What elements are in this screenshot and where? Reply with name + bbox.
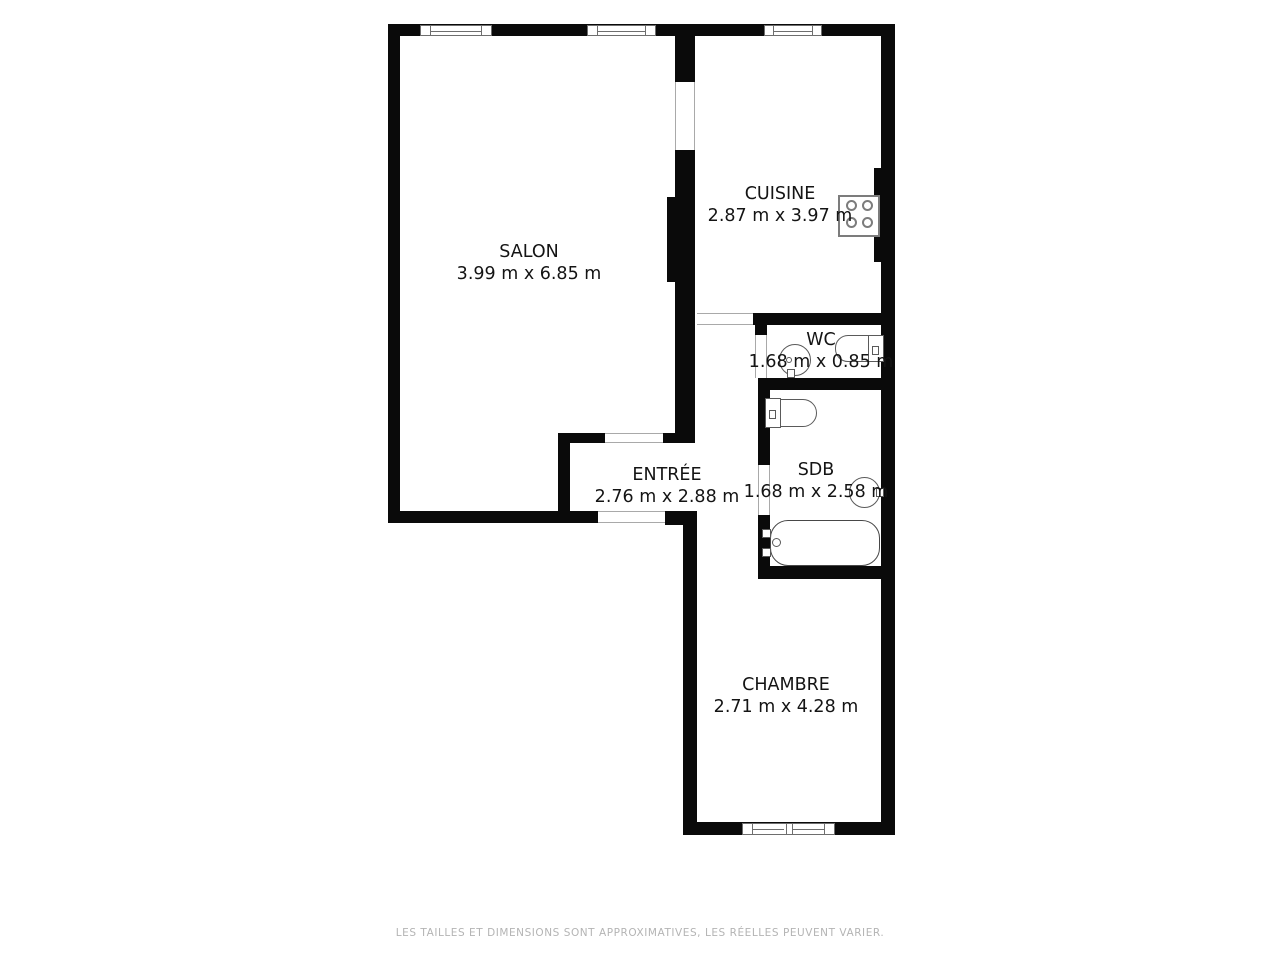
window-salon-left-icon — [420, 25, 492, 36]
room-dimensions: 2.76 m x 2.88 m — [595, 486, 740, 508]
room-label-chambre: CHAMBRE 2.71 m x 4.28 m — [714, 674, 859, 718]
disclaimer-text: LES TAILLES ET DIMENSIONS SONT APPROXIMA… — [396, 927, 885, 939]
room-dimensions: 3.99 m x 6.85 m — [457, 263, 602, 285]
wall-salon-notch-nib — [558, 433, 605, 443]
opening-salon-entree — [605, 433, 663, 443]
wall-left — [388, 24, 400, 523]
room-label-salon: SALON 3.99 m x 6.85 m — [457, 241, 602, 285]
room-dimensions: 1.68 m x 2.58 m — [744, 481, 889, 503]
wall-divider-bump — [667, 197, 675, 282]
sdb-toilet-button-icon — [769, 410, 776, 419]
wall-right — [881, 24, 895, 835]
room-dimensions: 2.71 m x 4.28 m — [714, 696, 859, 718]
window-cuisine-icon — [764, 25, 822, 36]
opening-cuisine-corridor — [697, 313, 753, 325]
window-chambre-icon — [742, 823, 835, 835]
room-label-sdb: SDB 1.68 m x 2.58 m — [744, 459, 889, 503]
room-dimensions: 1.68 m x 0.85 m — [749, 351, 894, 373]
room-name: ENTRÉE — [595, 464, 740, 486]
opening-front-door — [598, 511, 665, 523]
floorplan-canvas: SALON 3.99 m x 6.85 m CUISINE 2.87 m x 3… — [0, 0, 1280, 960]
room-label-cuisine: CUISINE 2.87 m x 3.97 m — [708, 183, 853, 227]
room-name: CUISINE — [708, 183, 853, 205]
wall-chambre-left — [683, 525, 697, 835]
wall-entree-nib — [663, 433, 677, 443]
wall-front-door-corner — [665, 511, 697, 525]
sdb-toilet-bowl-icon — [780, 399, 817, 427]
wall-divider-top — [675, 36, 695, 82]
wall-salon-notch-vertical — [558, 433, 570, 513]
bathtub-icon — [770, 520, 880, 566]
wall-sdb-bottom — [758, 566, 881, 579]
wall-cuisine-bottom — [753, 313, 881, 325]
bathtub-faucet-top-icon — [762, 529, 771, 538]
bathtub-faucet-knob-icon — [772, 538, 781, 547]
wall-divider-main — [675, 150, 695, 443]
room-name: SDB — [744, 459, 889, 481]
bathtub-faucet-bottom-icon — [762, 548, 771, 557]
room-label-entree: ENTRÉE 2.76 m x 2.88 m — [595, 464, 740, 508]
room-name: CHAMBRE — [714, 674, 859, 696]
wall-wc-bottom — [758, 378, 881, 390]
room-name: SALON — [457, 241, 602, 263]
window-salon-right-icon — [587, 25, 656, 36]
room-name: WC — [749, 329, 894, 351]
opening-salon-cuisine — [675, 82, 695, 150]
room-label-wc: WC 1.68 m x 0.85 m — [749, 329, 894, 373]
room-dimensions: 2.87 m x 3.97 m — [708, 205, 853, 227]
